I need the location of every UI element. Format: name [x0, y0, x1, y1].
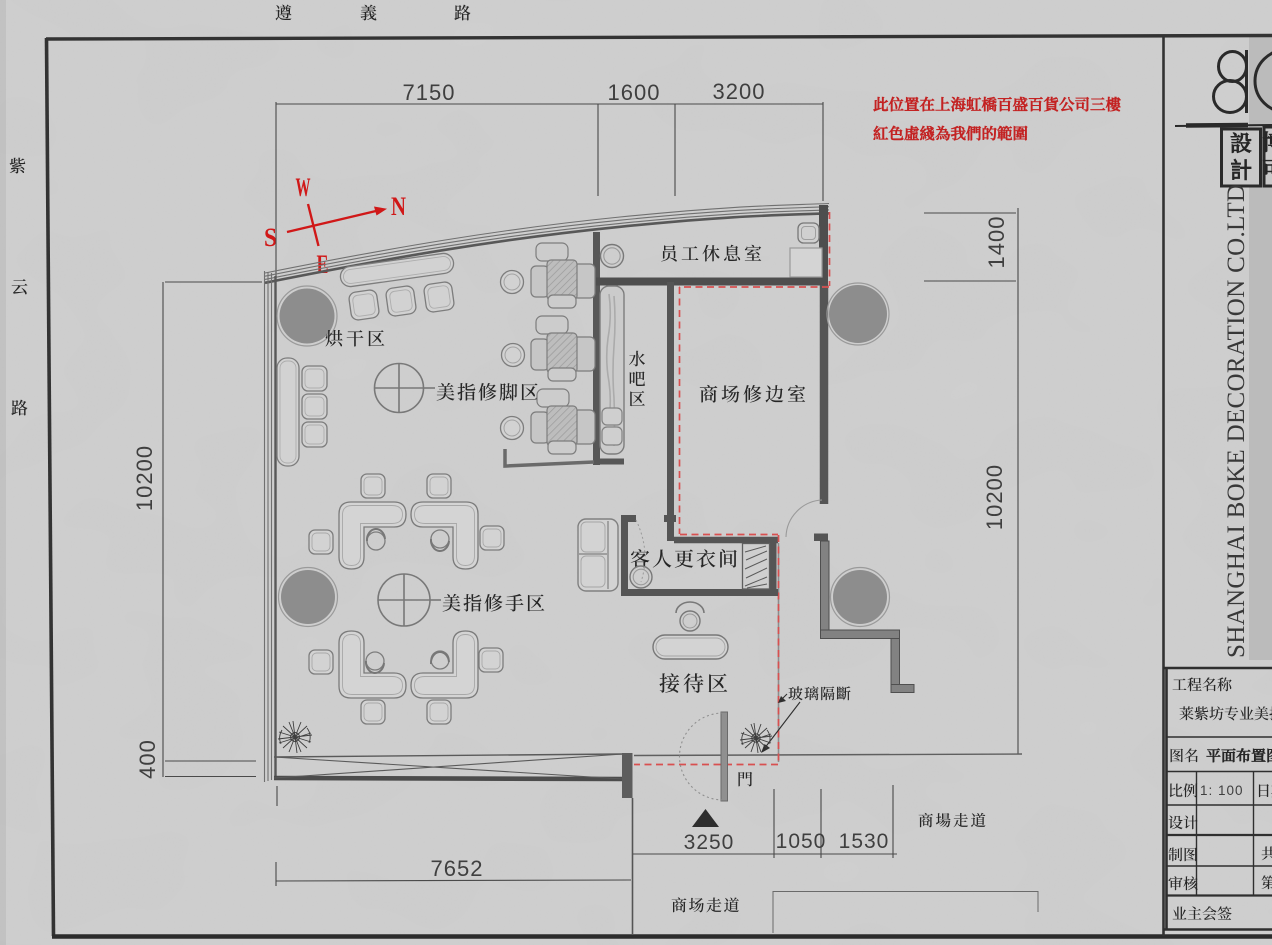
svg-text:門: 門 [737, 767, 753, 790]
svg-text:路: 路 [11, 394, 28, 419]
svg-text:比例: 比例 [1168, 780, 1198, 801]
svg-text:紫: 紫 [9, 152, 26, 177]
svg-text:接待区: 接待区 [659, 668, 731, 698]
svg-text:业主会签: 业主会签 [1172, 903, 1232, 924]
svg-text:N: N [391, 192, 406, 221]
svg-text:3250: 3250 [684, 831, 735, 854]
svg-text:1530: 1530 [839, 830, 890, 853]
svg-text:员工休息室: 员工休息室 [660, 240, 765, 266]
svg-text:工程名称: 工程名称 [1172, 674, 1232, 695]
svg-text:S: S [264, 223, 277, 252]
svg-text:玻璃隔斷: 玻璃隔斷 [788, 683, 852, 704]
svg-text:莱紫坊专业美指修: 莱紫坊专业美指修 [1179, 703, 1272, 724]
svg-text:烘干区: 烘干区 [325, 325, 388, 351]
svg-text:1050: 1050 [776, 830, 827, 853]
svg-text:商場走道: 商場走道 [918, 809, 988, 831]
svg-text:美指修手区: 美指修手区 [442, 589, 547, 616]
svg-text:3200: 3200 [713, 79, 766, 104]
svg-text:设计: 设计 [1168, 812, 1198, 833]
svg-text:图名: 图名 [1169, 745, 1199, 766]
svg-text:遵: 遵 [275, 0, 292, 24]
svg-text:云: 云 [11, 273, 28, 298]
svg-text:制图: 制图 [1168, 844, 1198, 865]
svg-text:紅色虛綫為我們的範圍: 紅色虛綫為我們的範圍 [873, 122, 1028, 144]
svg-text:10200: 10200 [982, 464, 1007, 530]
svg-text:共: 共 [1261, 843, 1272, 864]
svg-text:平面布置图: 平面布置图 [1206, 745, 1272, 766]
svg-text:商场走道: 商场走道 [671, 893, 741, 916]
svg-text:10200: 10200 [132, 445, 157, 511]
svg-text:1: 100: 1: 100 [1200, 783, 1244, 798]
svg-text:1400: 1400 [984, 216, 1009, 269]
svg-text:路: 路 [454, 0, 471, 24]
svg-text:美指修脚区: 美指修脚区 [436, 378, 541, 405]
svg-text:W: W [296, 173, 311, 202]
svg-text:SHANGHAI BOKE DECORATION CO: SHANGHAI BOKE DECORATION CO.LTD [1223, 184, 1250, 658]
svg-text:計: 計 [1230, 154, 1252, 185]
svg-text:400: 400 [135, 739, 160, 779]
svg-text:可: 可 [1262, 153, 1272, 184]
svg-text:7652: 7652 [431, 856, 484, 881]
svg-text:商场修边室: 商场修边室 [699, 380, 809, 407]
svg-text:第: 第 [1261, 872, 1272, 893]
svg-text:7150: 7150 [403, 80, 456, 105]
svg-text:此位置在上海虹橋百盛百貨公司三樓: 此位置在上海虹橋百盛百貨公司三樓 [873, 93, 1121, 115]
svg-text:区: 区 [629, 385, 646, 410]
svg-text:审核: 审核 [1168, 873, 1198, 894]
svg-text:日期: 日期 [1256, 780, 1272, 801]
svg-text:義: 義 [360, 0, 377, 24]
svg-text:1600: 1600 [608, 80, 661, 105]
